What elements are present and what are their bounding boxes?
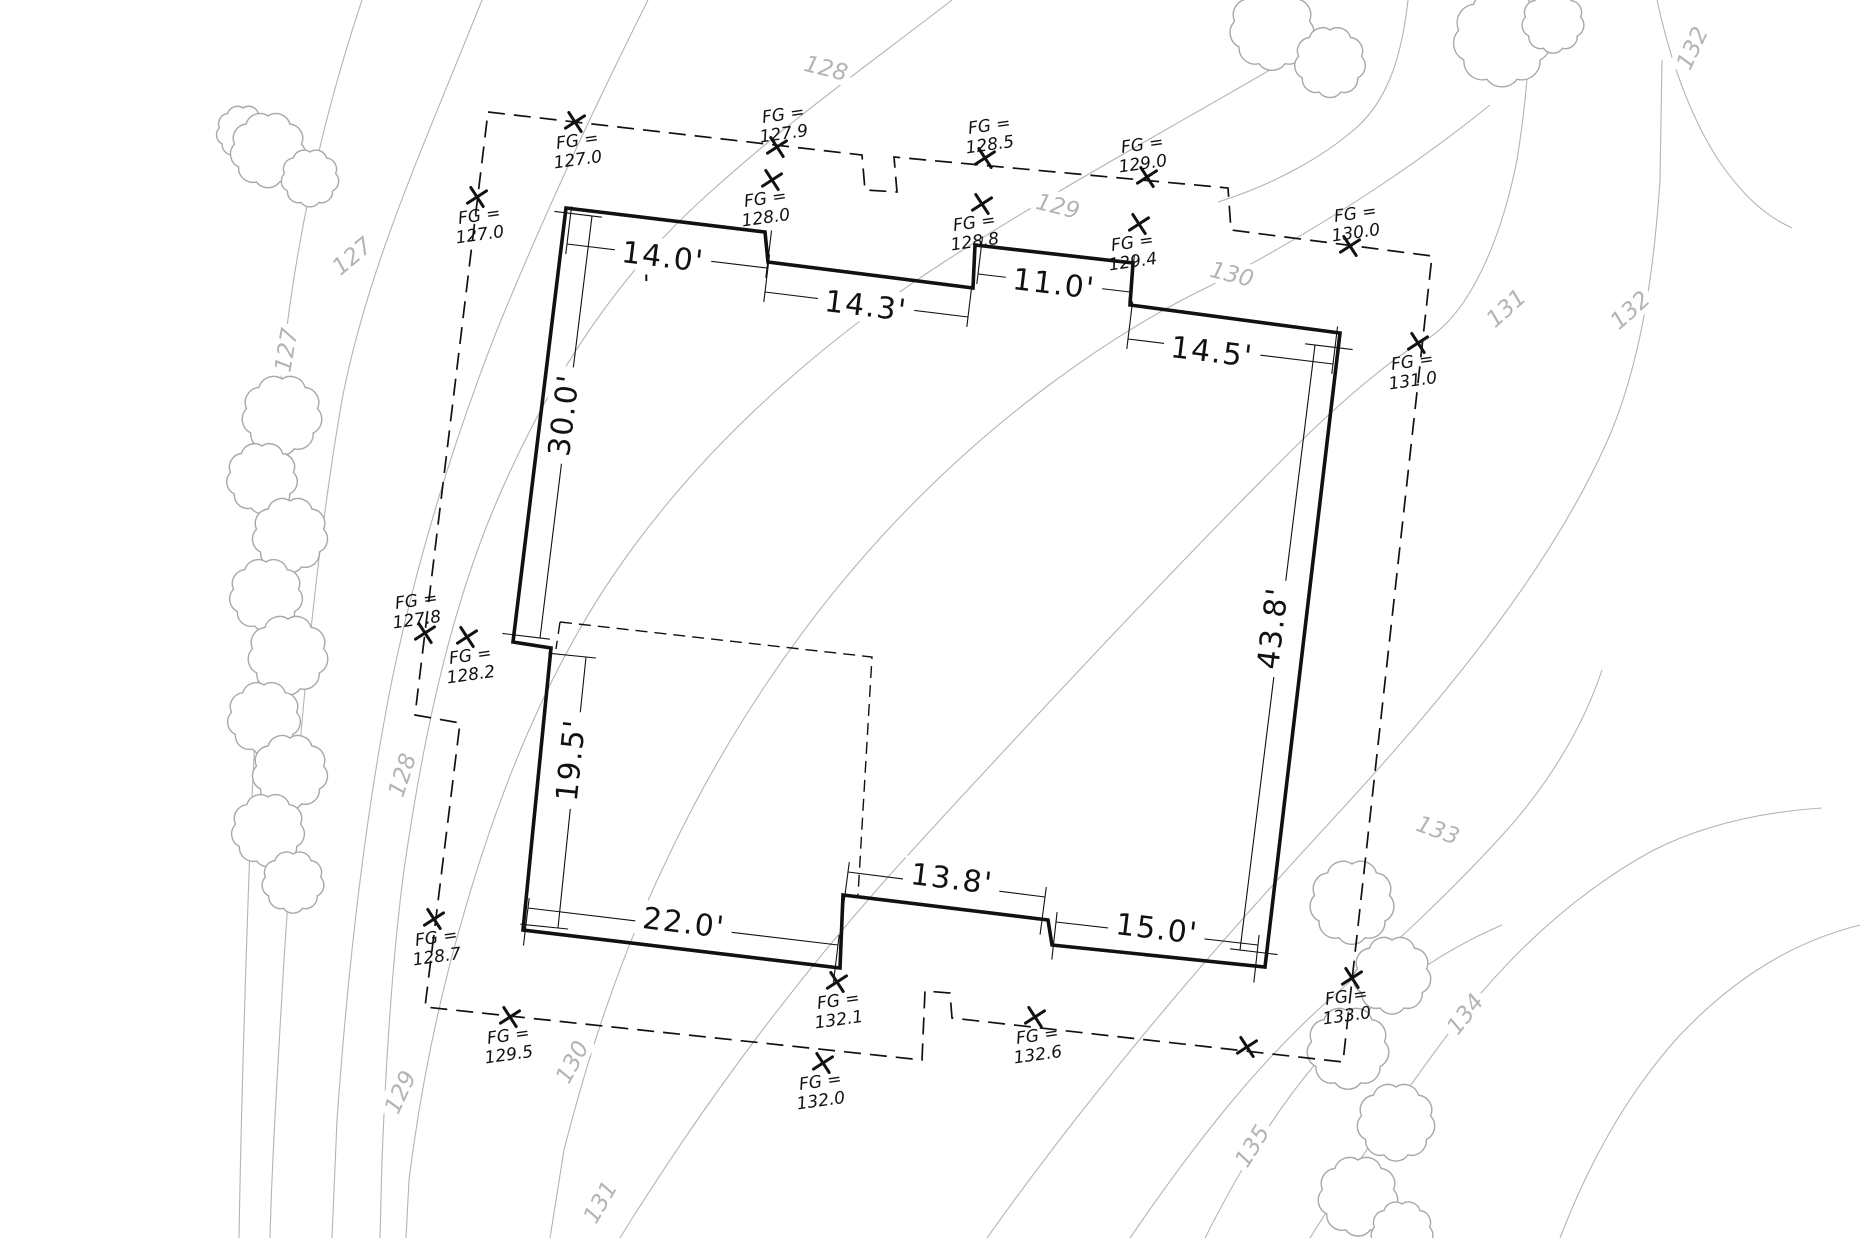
dimensions-layer: 14.0'14.3'11.0'14.5'43.8'30.0'19.5'22.0'… (502, 206, 1352, 982)
dimension-group: 43.8' (1230, 344, 1353, 955)
fg-label-group: FG =133.0 (1319, 984, 1373, 1029)
fg-marker: FG =132.1 (811, 973, 865, 1034)
dimension-label: 30.0' (542, 372, 587, 458)
contour-label: 133 (1413, 811, 1463, 850)
dimension-group: 19.5' (520, 653, 596, 929)
fg-marker: FG =127.0 (550, 113, 604, 174)
fg-label-group: FG =132.1 (811, 988, 865, 1033)
dimension-label-group: 30.0' (540, 365, 588, 466)
contour-label-group: 127 (323, 229, 381, 284)
fg-x-icon (828, 973, 847, 992)
dimension-label-group: 43.8' (1249, 578, 1297, 679)
dimension-label: 43.8' (1251, 585, 1296, 671)
contour-line (1560, 925, 1860, 1238)
dimension-label: 19.5' (550, 717, 593, 803)
tree-canopy-icon (281, 150, 338, 207)
fg-marker: FG =128.0 (738, 171, 792, 232)
site-plan-page: 1271271281281291291301301311311321321331… (0, 0, 1866, 1238)
fg-x-icon (425, 910, 444, 929)
dimension-group: 13.8' (843, 855, 1046, 934)
contour-line (380, 0, 952, 1238)
fg-marker: FG =129.5 (481, 1008, 535, 1069)
fg-label-group: FG =129.5 (481, 1023, 535, 1068)
extension-tick (520, 924, 568, 929)
tree-canopy-icon (1310, 861, 1394, 944)
dimension-label: 13.8' (909, 857, 995, 902)
fg-label-group: FG =127.0 (452, 203, 506, 248)
fg-marker: FG =128.5 (962, 113, 1016, 167)
dimension-group: 22.0' (523, 898, 839, 983)
fg-marker: FG =128.7 (409, 910, 463, 971)
contour-label-group: 131 (1477, 280, 1534, 336)
tree-canopy-icon (1295, 28, 1366, 98)
dimension-label: 11.0' (1011, 262, 1097, 307)
tree-canopy-icon (1357, 1084, 1434, 1161)
extension-tick (1052, 912, 1057, 960)
fg-marker: FG =132.0 (793, 1054, 847, 1115)
fg-label-group: FG =128.7 (409, 925, 463, 970)
dimension-label: 22.0' (641, 901, 727, 946)
fg-x-icon (458, 628, 477, 647)
fg-marker (1238, 1038, 1257, 1057)
fg-label-group: FG =130.0 (1328, 201, 1382, 246)
interior-dashed-line (556, 622, 872, 895)
fg-x-group (1026, 1008, 1045, 1027)
stray-mark: ' (643, 270, 650, 298)
fg-label-group: FG =128.8 (947, 210, 1001, 255)
contour-label-group: 130 (1203, 254, 1260, 294)
fg-marker: FG =130.0 (1328, 201, 1382, 255)
fg-marker: FG =127.0 (452, 188, 506, 249)
dimension-label: 14.3' (823, 284, 909, 329)
contour-label: 130 (1207, 257, 1256, 293)
contour-label: 129 (1033, 189, 1082, 225)
building-footprint-outline (513, 208, 1340, 968)
extension-tick (843, 862, 849, 910)
contour-label-group: 128 (797, 48, 854, 88)
fg-x-group (828, 973, 847, 992)
dimension-label: 14.5' (1169, 330, 1255, 375)
fg-label-group: FG =128.5 (962, 113, 1016, 158)
contour-label-group: 129 (376, 1063, 423, 1122)
fg-label-group: FG =129.0 (1115, 132, 1169, 177)
dimension-label-group: 11.0' (1004, 260, 1105, 308)
site-plan-svg: 1271271281281291291301301311311321321331… (0, 0, 1866, 1238)
dimension-group: 30.0' (502, 211, 602, 639)
contour-label-group: 128 (381, 746, 424, 804)
extension-tick (1305, 344, 1353, 350)
extension-tick (1040, 887, 1046, 935)
fg-marker: FG =131.0 (1385, 334, 1439, 395)
dimension-label-group: 13.8' (902, 855, 1003, 903)
dimension-label-group: 14.5' (1162, 328, 1263, 376)
fg-label-group: FG =127.8 (389, 588, 443, 633)
contour-label-group: 131 (575, 1172, 625, 1231)
dimension-label-group: 14.3' (816, 282, 917, 330)
fg-marker: FG =127.8 (389, 588, 443, 642)
extension-tick (1254, 935, 1259, 983)
contour-line (620, 0, 1532, 1238)
tree-canopy-icon (262, 852, 324, 913)
contour-label-group: 132 (1668, 19, 1715, 78)
contour-label-group: 129 (1029, 186, 1086, 226)
contour-label-group: 132 (1601, 282, 1658, 338)
fg-label-group: FG =132.6 (1010, 1023, 1064, 1068)
dimension-label-group: 14.0' (613, 233, 714, 281)
fg-x-icon (814, 1054, 833, 1073)
dimension-label-group: 15.0' (1107, 905, 1208, 953)
fg-x-group (458, 628, 477, 647)
fg-marker: FG =128.8 (947, 195, 1001, 256)
dimension-label-group: 22.0' (634, 899, 735, 947)
dimension-label-group: 19.5' (548, 710, 594, 810)
contour-label-group: 134 (1438, 985, 1492, 1043)
fg-x-icon (1238, 1038, 1257, 1057)
contour-label: 128 (801, 51, 850, 87)
fg-label-group: FG =127.0 (550, 128, 604, 173)
contour-label-group: 133 (1409, 808, 1467, 852)
fg-x-group (1238, 1038, 1257, 1057)
dimension-group: 15.0' (1052, 905, 1259, 982)
fg-marker: FG =129.4 (1105, 215, 1159, 276)
fg-label-group: FG =128.2 (443, 643, 497, 688)
extension-tick (1230, 949, 1278, 955)
extension-tick (1127, 301, 1133, 349)
fg-marker: FG =132.6 (1010, 1008, 1064, 1069)
fg-label-group: FG =131.0 (1385, 349, 1439, 394)
contour-label-group: 127 (268, 322, 305, 378)
contour-line (1657, 0, 1792, 228)
dimension-label: 15.0' (1114, 907, 1200, 952)
fg-label-group: FG =132.0 (793, 1069, 847, 1114)
fg-label-group: FG =129.4 (1105, 230, 1159, 275)
fg-label-group: FG =128.0 (738, 186, 792, 231)
fg-label-group: FG =127.9 (756, 102, 810, 147)
extension-tick (548, 653, 596, 658)
extension-tick (502, 633, 550, 639)
fg-x-group (814, 1054, 833, 1073)
tree-canopy-icon (1522, 0, 1584, 53)
fg-x-group (425, 910, 444, 929)
fg-x-icon (1026, 1008, 1045, 1027)
